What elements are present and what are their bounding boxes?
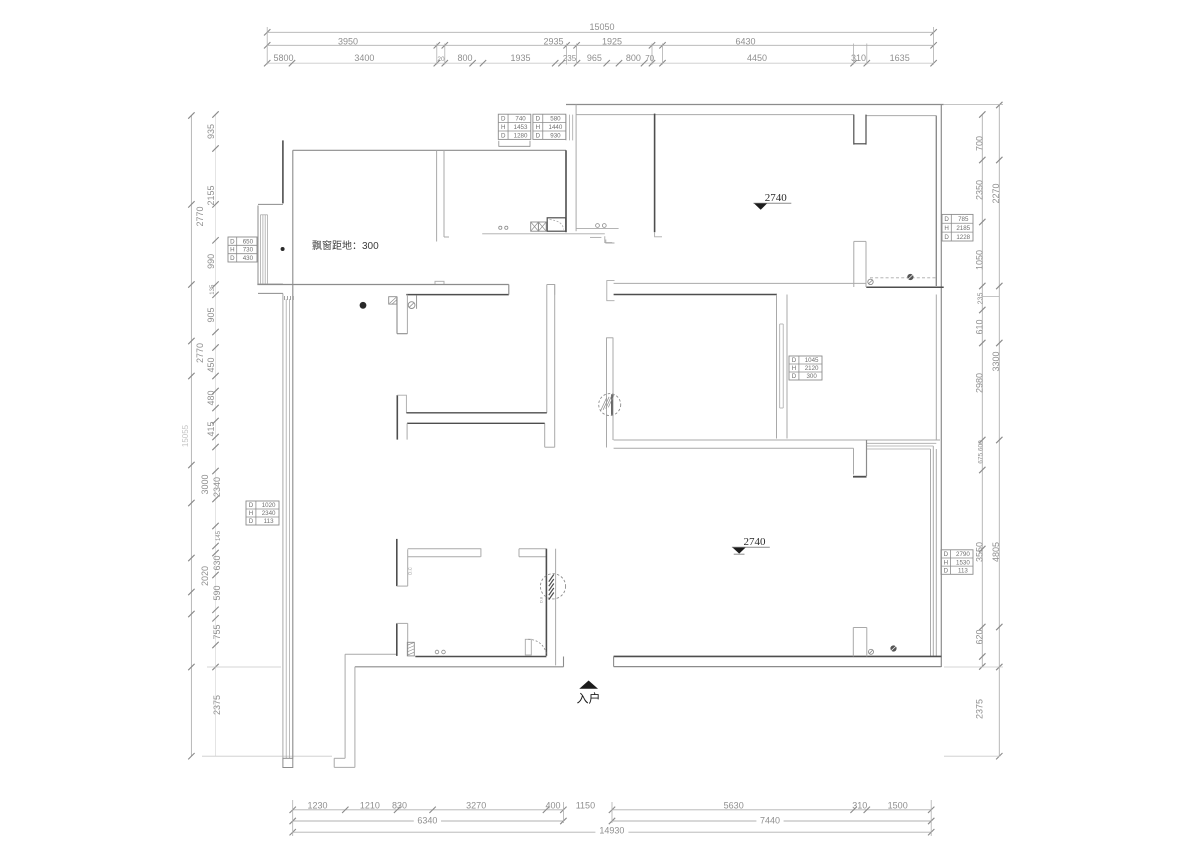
svg-text:飘窗距地：300: 飘窗距地：300 [312,239,379,252]
svg-text:800: 800 [457,53,472,63]
svg-text:2375: 2375 [975,699,985,719]
svg-text:2790: 2790 [956,551,970,558]
svg-text:1045: 1045 [805,357,819,364]
svg-text:1280: 1280 [514,132,528,139]
svg-text:H: H [944,225,948,232]
svg-text:H: H [230,247,234,254]
svg-text:2375: 2375 [212,695,222,715]
svg-text:H: H [944,559,948,566]
svg-text:D: D [501,132,506,139]
svg-text:1150: 1150 [576,801,595,811]
svg-text:990: 990 [206,254,216,269]
svg-text:905: 905 [206,307,216,322]
svg-text:5630: 5630 [724,801,744,811]
svg-text:650: 650 [243,238,254,245]
svg-text:D: D [249,518,254,525]
svg-text:785: 785 [958,216,969,223]
svg-text:113: 113 [958,567,968,574]
svg-text:620: 620 [975,629,985,644]
svg-text:D.8: D.8 [539,596,544,603]
svg-text:935: 935 [206,124,216,139]
svg-text:2980: 2980 [975,373,985,393]
svg-text:113: 113 [264,518,274,525]
svg-text:15055: 15055 [181,424,190,447]
svg-text:415: 415 [206,421,216,436]
svg-text:D: D [944,567,949,574]
svg-text:6430: 6430 [735,36,755,46]
svg-text:480: 480 [206,390,216,405]
svg-text:H: H [536,124,540,131]
svg-text:630: 630 [212,555,222,570]
svg-text:610: 610 [975,319,985,334]
svg-text:2340: 2340 [212,477,222,497]
svg-text:730: 730 [243,247,254,254]
svg-text:入户: 入户 [576,691,600,706]
svg-text:2740: 2740 [744,536,767,548]
svg-text:7440: 7440 [760,815,780,825]
svg-text:1440: 1440 [549,124,563,131]
svg-text:D: D [536,132,541,139]
svg-text:1050: 1050 [975,250,985,270]
svg-text:235: 235 [978,293,985,305]
svg-text:3550: 3550 [975,542,985,562]
svg-text:740: 740 [515,116,526,123]
svg-text:3300: 3300 [991,351,1001,371]
svg-text:450: 450 [206,357,216,372]
svg-text:145: 145 [216,530,222,541]
svg-text:H: H [792,365,796,372]
svg-text:2770: 2770 [195,206,205,226]
svg-text:430: 430 [243,255,254,262]
svg-text:1020: 1020 [262,502,276,509]
svg-text:2020: 2020 [200,566,210,586]
svg-text:D: D [792,373,797,380]
svg-text:4450: 4450 [747,53,767,63]
svg-text:930: 930 [550,132,561,139]
svg-text:2740: 2740 [765,192,788,204]
svg-text:300: 300 [806,373,817,380]
svg-text:2935: 2935 [543,36,563,46]
svg-text:755: 755 [212,624,222,639]
svg-text:D: D [792,357,797,364]
svg-text:D: D [536,116,541,123]
svg-text:830: 830 [392,801,407,811]
svg-text:H: H [501,124,505,131]
svg-text:4805: 4805 [991,542,1001,562]
svg-text:3270: 3270 [466,801,486,811]
svg-text:1453: 1453 [514,124,528,131]
svg-text:1925: 1925 [602,36,622,46]
svg-text:D: D [249,502,254,509]
svg-text:1210: 1210 [360,801,380,811]
svg-text:6340: 6340 [417,815,437,825]
svg-text:590: 590 [212,585,222,600]
svg-text:2120: 2120 [805,365,819,372]
svg-text:D: D [230,238,235,245]
svg-text:1935: 1935 [510,53,530,63]
svg-text:2350: 2350 [975,180,985,200]
svg-text:5800: 5800 [273,53,293,63]
svg-text:D: D [230,255,235,262]
svg-text:400: 400 [545,801,560,811]
svg-text:1228: 1228 [956,234,970,241]
svg-text:800: 800 [626,53,641,63]
svg-text:H: H [249,510,253,517]
svg-text:2185: 2185 [956,225,970,232]
svg-text:3400: 3400 [354,53,374,63]
svg-text:15050: 15050 [589,22,614,32]
svg-text:700: 700 [975,136,985,151]
svg-text:3000: 3000 [200,474,210,494]
svg-text:2155: 2155 [206,185,216,205]
svg-text:D: D [501,116,506,123]
svg-text:1530: 1530 [956,559,970,566]
svg-text:135: 135 [210,284,216,295]
svg-text:675 600: 675 600 [978,440,985,464]
svg-text:1230: 1230 [307,801,327,811]
svg-text:2270: 2270 [991,183,1001,203]
svg-text:14930: 14930 [599,825,624,835]
svg-text:D: D [944,551,949,558]
svg-text:2770: 2770 [195,343,205,363]
svg-text:2340: 2340 [262,510,276,517]
svg-text:965: 965 [587,53,602,63]
svg-text:235: 235 [563,54,577,63]
svg-text:3950: 3950 [338,36,358,46]
svg-text:580: 580 [550,116,561,123]
svg-text:1635: 1635 [890,53,910,63]
svg-text:D: D [944,216,949,223]
svg-text:D: D [944,234,949,241]
svg-text:1500: 1500 [888,801,908,811]
svg-text:D.C: D.C [408,566,413,575]
